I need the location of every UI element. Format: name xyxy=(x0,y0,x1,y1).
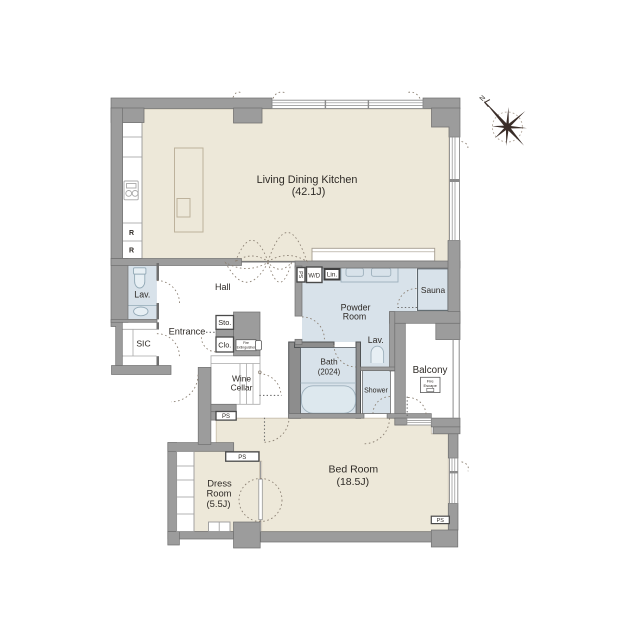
svg-text:(18.5J): (18.5J) xyxy=(336,476,369,488)
svg-text:Balcony: Balcony xyxy=(413,365,448,376)
svg-text:W/D: W/D xyxy=(308,273,320,279)
svg-text:Shower: Shower xyxy=(364,388,388,395)
svg-text:Lav.: Lav. xyxy=(368,335,384,345)
svg-text:Bath: Bath xyxy=(320,357,338,367)
svg-text:R: R xyxy=(129,248,134,255)
svg-text:Entrance: Entrance xyxy=(169,326,206,336)
svg-text:PS: PS xyxy=(437,518,445,524)
svg-text:Living Dining Kitchen: Living Dining Kitchen xyxy=(257,174,358,186)
svg-text:Extinguisher: Extinguisher xyxy=(237,346,257,350)
svg-text:Room: Room xyxy=(206,487,231,498)
svg-text:Hall: Hall xyxy=(215,282,231,292)
svg-text:(2024): (2024) xyxy=(318,368,341,377)
svg-text:Escape: Escape xyxy=(424,383,438,388)
svg-text:Cellar: Cellar xyxy=(231,383,253,393)
svg-text:PS: PS xyxy=(222,414,230,420)
svg-text:(5.5J): (5.5J) xyxy=(207,498,231,509)
svg-text:PS: PS xyxy=(238,455,246,461)
svg-text:Lin.: Lin. xyxy=(327,272,338,279)
svg-text:Bed Room: Bed Room xyxy=(328,464,378,476)
svg-text:Clo.: Clo. xyxy=(218,340,231,349)
svg-text:SIC: SIC xyxy=(136,339,150,349)
svg-text:Sto.: Sto. xyxy=(218,318,231,327)
svg-text:R: R xyxy=(129,230,134,237)
svg-text:PS: PS xyxy=(297,271,303,278)
svg-text:Room: Room xyxy=(343,311,366,321)
svg-text:Lav.: Lav. xyxy=(134,290,150,300)
svg-text:(42.1J): (42.1J) xyxy=(292,186,326,198)
svg-text:Fire: Fire xyxy=(243,341,249,345)
svg-text:Sauna: Sauna xyxy=(421,285,446,295)
